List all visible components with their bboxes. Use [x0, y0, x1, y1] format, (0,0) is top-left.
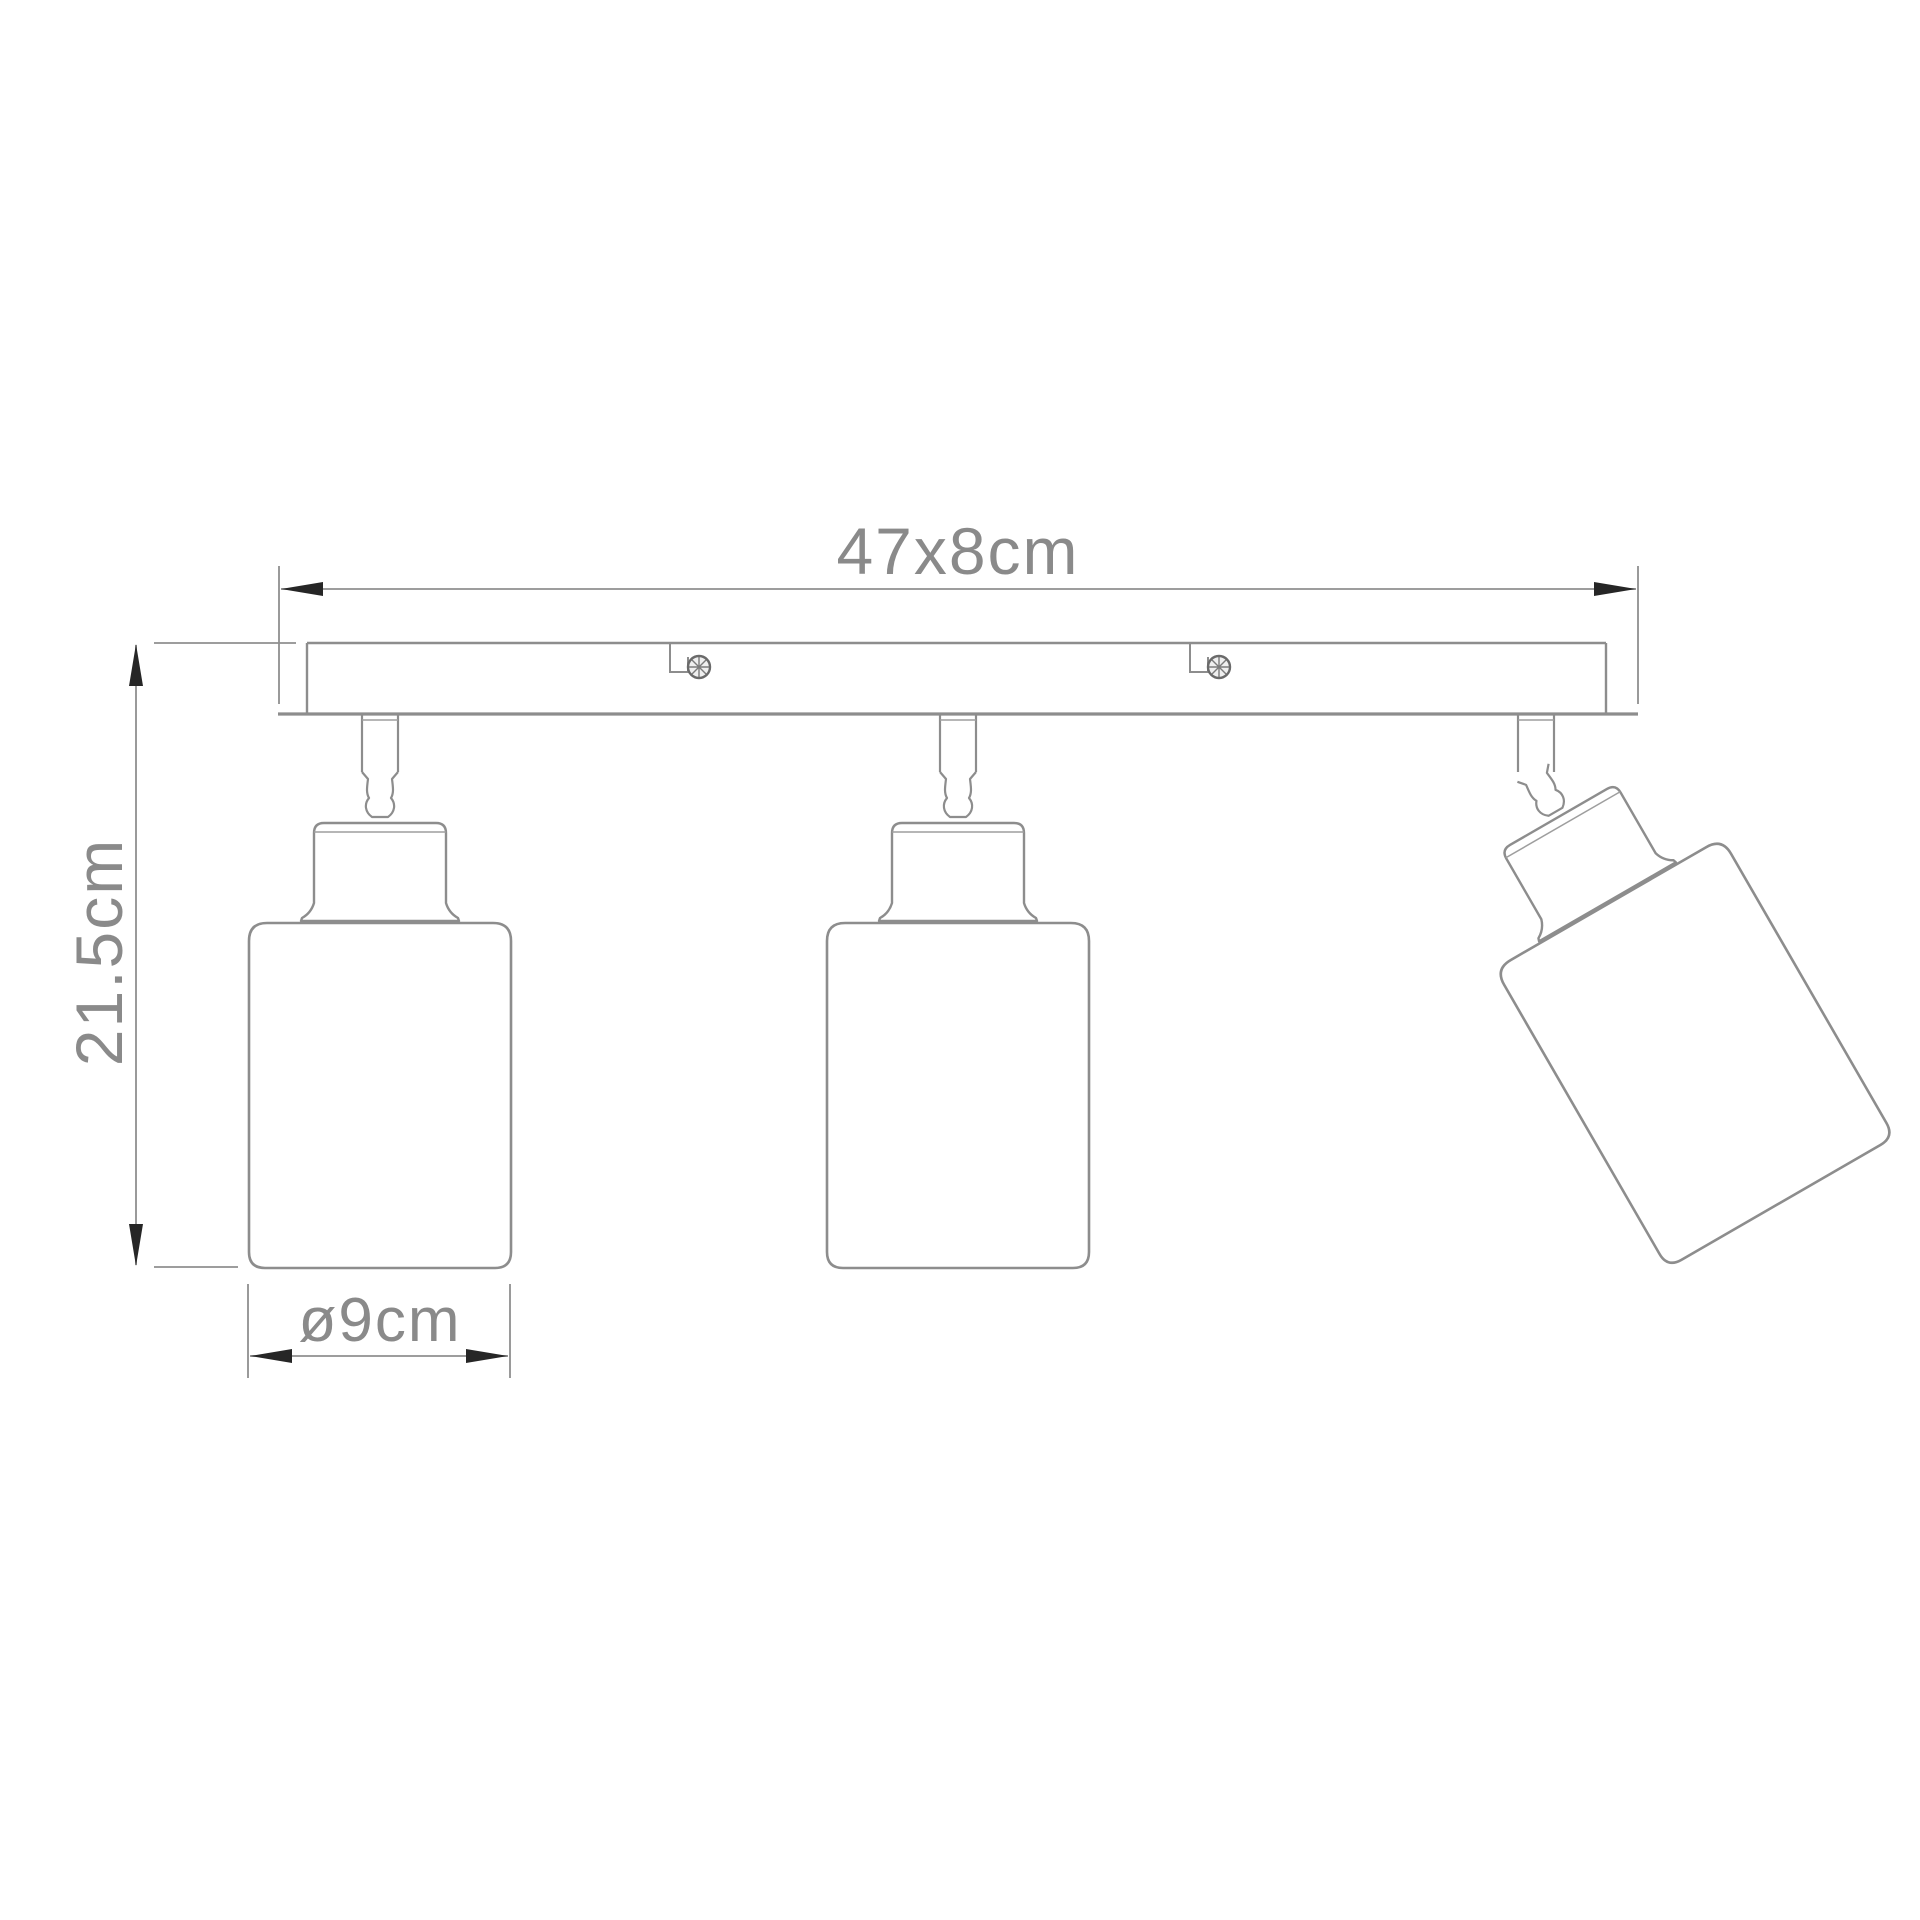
diameter-dimension-label: ø9cm: [299, 1286, 462, 1355]
spot-tilted-group: [1420, 707, 1895, 1268]
technical-drawing: 47x8cm 21.5cm ø9cm: [0, 0, 1920, 1920]
dimension-shade-diameter: ø9cm: [248, 1284, 510, 1378]
spotlight-center: [827, 714, 1089, 1268]
screw-icon: [1190, 644, 1230, 678]
spot-shade: [827, 772, 1089, 1268]
arrow-left-icon: [250, 1349, 292, 1363]
spot-shade: [1420, 707, 1895, 1268]
spot-stem: [940, 714, 976, 772]
arrow-down-icon: [129, 1224, 143, 1266]
arrow-up-icon: [129, 644, 143, 686]
spot-stem: [362, 714, 398, 772]
screw-slot-right: [1190, 644, 1230, 678]
arrow-right-icon: [1594, 582, 1636, 596]
height-dimension-label: 21.5cm: [62, 838, 136, 1066]
bar-dimension-label: 47x8cm: [836, 514, 1079, 588]
mounting-plate: [278, 643, 1638, 714]
screw-icon: [670, 644, 710, 678]
spot-shade: [249, 772, 511, 1268]
screw-slot-left: [670, 644, 710, 678]
dimension-bar-width: 47x8cm: [279, 514, 1638, 704]
spotlight-left: [249, 714, 511, 1268]
arrow-left-icon: [281, 582, 323, 596]
arrow-right-icon: [466, 1349, 508, 1363]
drawing-canvas: 47x8cm 21.5cm ø9cm: [0, 0, 1920, 1920]
spotlight-right: [1420, 707, 1895, 1268]
spot-stem: [1518, 714, 1554, 772]
